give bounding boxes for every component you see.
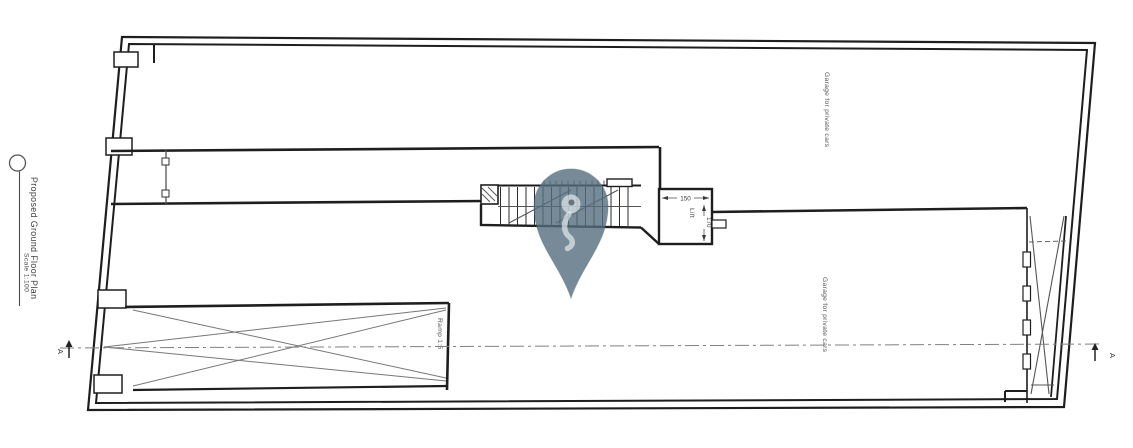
lift-depth-dimension: 170 [705,217,712,228]
stair-landing-rect [607,179,632,187]
drawing-scale: Scale 1:100 [23,253,30,292]
door-jamb [162,190,169,197]
title-block: Proposed Ground Floor Plan Scale 1:100 [10,155,40,306]
ramp-label: Ramp 1:5 [436,318,443,349]
section-marker-right: A [1108,353,1117,358]
garage-upper-label: Garage for private cars [823,72,830,148]
title-reference-circle-icon [10,155,26,171]
louver [1023,320,1031,335]
section-marker-left: A [56,349,65,354]
lift-width-dimension: 150 [680,196,691,203]
wall-stub [712,220,726,228]
wall-notch [106,138,132,155]
door-jamb [162,158,169,165]
drawing-title: Proposed Ground Floor Plan [29,177,39,299]
louver [1023,252,1031,267]
lift-label: Lift [688,208,695,218]
garage-lower-label: Garage for private cars [821,277,828,353]
floor-plan-canvas: Proposed Ground Floor Plan Scale 1:100 [0,0,1133,448]
section-arrow-icon [66,340,73,347]
floor-plan-drawing: Proposed Ground Floor Plan Scale 1:100 [0,0,1133,448]
louver [1023,286,1031,301]
wall-notch [114,52,138,67]
wall-notch [98,290,126,308]
louver [1023,354,1031,369]
wall-notch [94,375,122,393]
